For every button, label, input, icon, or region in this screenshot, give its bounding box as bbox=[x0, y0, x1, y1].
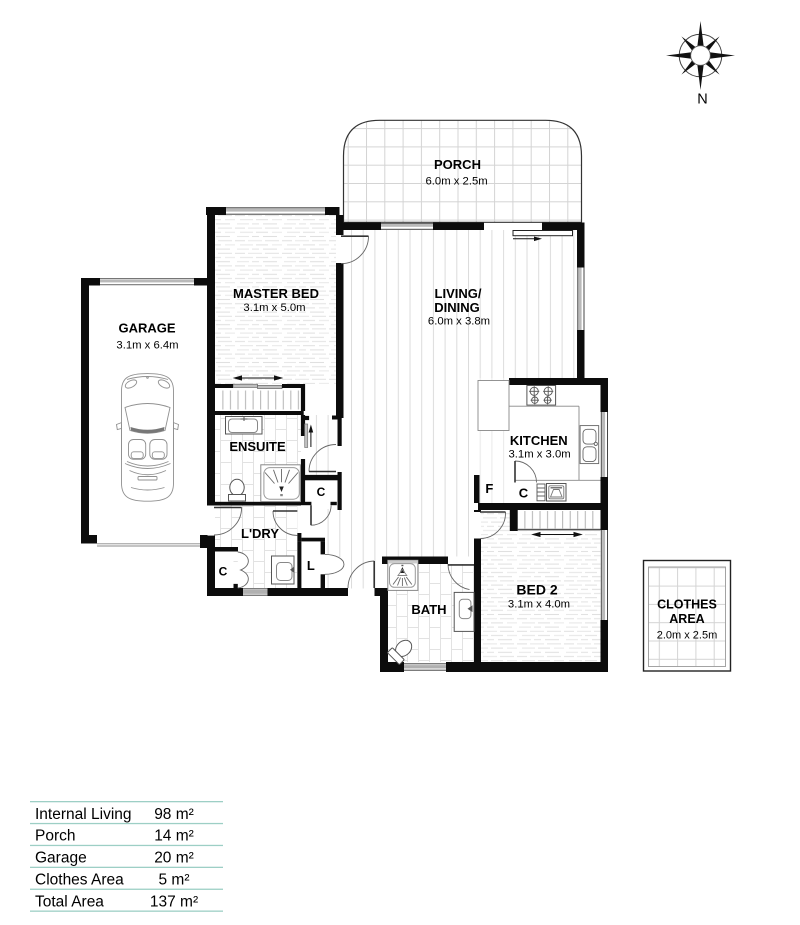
svg-text:C: C bbox=[519, 486, 529, 501]
svg-text:14 m²: 14 m² bbox=[154, 828, 194, 845]
svg-text:5 m²: 5 m² bbox=[159, 872, 190, 889]
svg-text:DINING: DINING bbox=[434, 300, 480, 315]
svg-text:CLOTHES: CLOTHES bbox=[657, 598, 717, 612]
svg-text:C: C bbox=[317, 485, 326, 499]
svg-text:MASTER BED: MASTER BED bbox=[233, 286, 319, 301]
svg-text:Total Area: Total Area bbox=[35, 893, 104, 910]
svg-text:6.0m x 3.8m: 6.0m x 3.8m bbox=[428, 316, 490, 328]
svg-text:F: F bbox=[485, 481, 493, 496]
svg-text:GARAGE: GARAGE bbox=[118, 321, 175, 336]
svg-text:20 m²: 20 m² bbox=[154, 850, 194, 867]
svg-text:3.1m x 5.0m: 3.1m x 5.0m bbox=[243, 302, 305, 314]
svg-text:PORCH: PORCH bbox=[434, 157, 481, 172]
svg-text:Clothes Area: Clothes Area bbox=[35, 872, 124, 889]
svg-text:L: L bbox=[307, 558, 315, 573]
svg-text:AREA: AREA bbox=[669, 612, 704, 626]
svg-text:6.0m x 2.5m: 6.0m x 2.5m bbox=[426, 176, 488, 188]
svg-text:KITCHEN: KITCHEN bbox=[510, 433, 568, 448]
svg-text:Garage: Garage bbox=[35, 850, 87, 867]
svg-text:3.1m x 4.0m: 3.1m x 4.0m bbox=[508, 599, 570, 611]
svg-text:Internal Living: Internal Living bbox=[35, 806, 132, 823]
svg-text:LIVING/: LIVING/ bbox=[435, 286, 482, 301]
svg-text:2.0m x 2.5m: 2.0m x 2.5m bbox=[657, 630, 718, 642]
svg-text:3.1m x 3.0m: 3.1m x 3.0m bbox=[509, 449, 571, 461]
svg-text:ENSUITE: ENSUITE bbox=[229, 439, 286, 454]
svg-text:BATH: BATH bbox=[411, 602, 446, 617]
svg-text:L'DRY: L'DRY bbox=[241, 526, 279, 541]
svg-text:BED 2: BED 2 bbox=[516, 582, 557, 598]
svg-text:137 m²: 137 m² bbox=[150, 893, 198, 910]
svg-text:98 m²: 98 m² bbox=[154, 806, 194, 823]
svg-text:C: C bbox=[219, 565, 228, 579]
svg-text:N: N bbox=[697, 92, 707, 108]
svg-text:3.1m x 6.4m: 3.1m x 6.4m bbox=[116, 340, 178, 352]
svg-text:Porch: Porch bbox=[35, 828, 76, 845]
